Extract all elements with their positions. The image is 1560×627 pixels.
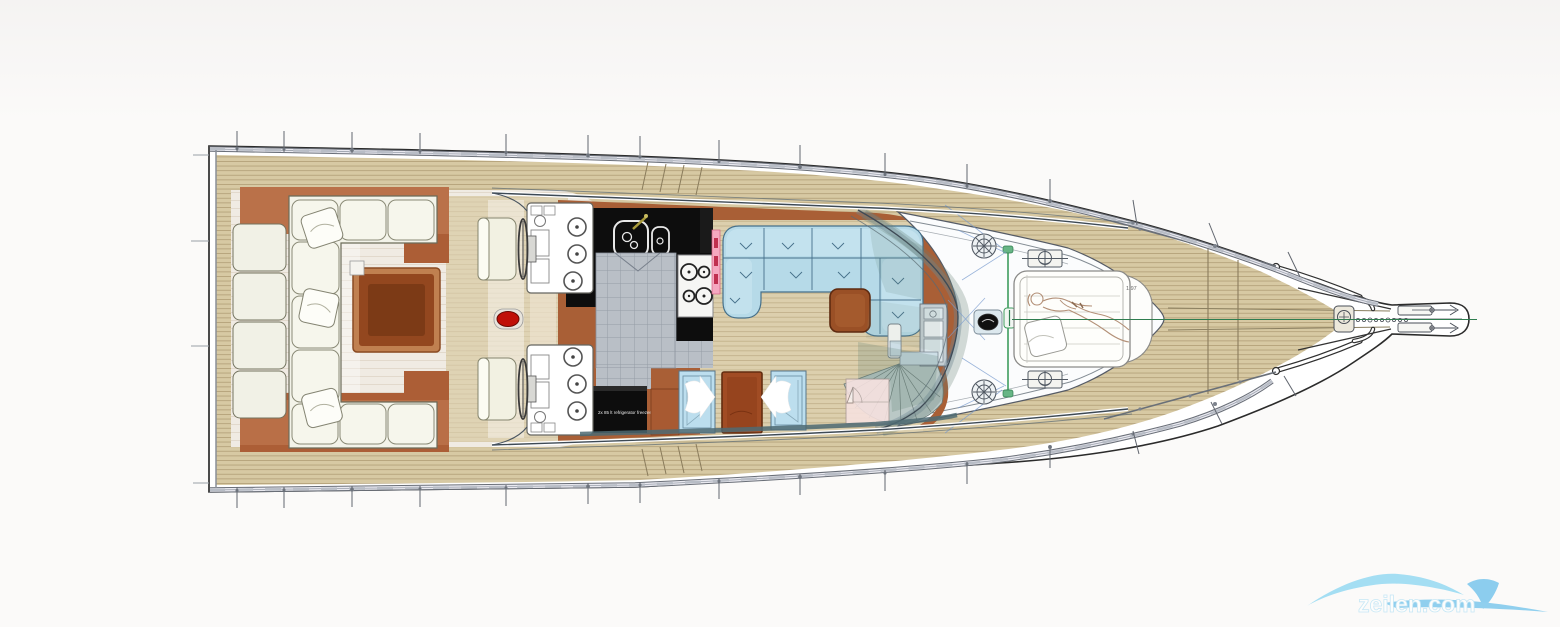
svg-text:1.97: 1.97 [1126, 286, 1137, 292]
svg-text:2x 85 lt refrigerator freezer: 2x 85 lt refrigerator freezer [598, 410, 652, 415]
svg-text:zeilen.com: zeilen.com [1358, 591, 1476, 617]
